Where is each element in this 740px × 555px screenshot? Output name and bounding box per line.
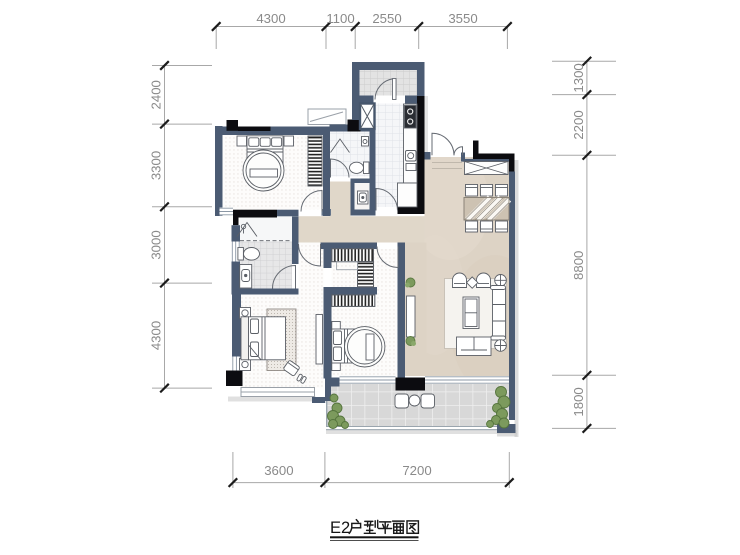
svg-text:8800: 8800	[571, 251, 586, 280]
svg-text:3550: 3550	[448, 11, 477, 26]
svg-text:2200: 2200	[571, 110, 586, 139]
svg-text:4300: 4300	[149, 321, 164, 350]
svg-text:3000: 3000	[149, 230, 164, 259]
svg-text:2400: 2400	[149, 80, 164, 109]
svg-text:E2: E2	[330, 519, 350, 537]
svg-text:1100: 1100	[326, 11, 354, 26]
svg-text:4300: 4300	[256, 11, 285, 26]
svg-text:3300: 3300	[149, 151, 164, 180]
svg-text:1300: 1300	[571, 63, 586, 92]
svg-text:1800: 1800	[571, 387, 586, 416]
svg-text:7200: 7200	[402, 463, 431, 478]
svg-text:3600: 3600	[264, 463, 293, 478]
svg-text:2550: 2550	[372, 11, 401, 26]
